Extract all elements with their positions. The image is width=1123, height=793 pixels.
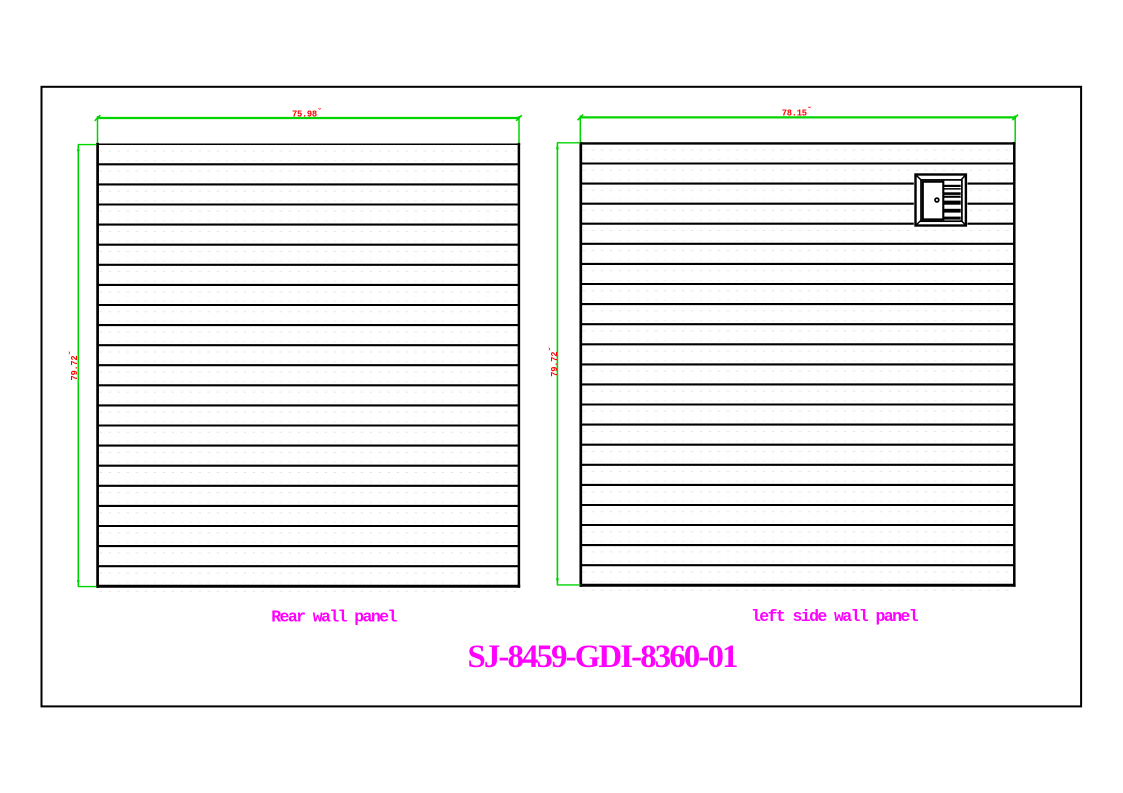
svg-text:79.72ˇ: 79.72ˇ (548, 347, 560, 377)
svg-text:79.72ˇ: 79.72ˇ (68, 350, 80, 380)
svg-text:SJ-8459-GDI-8360-01: SJ-8459-GDI-8360-01 (467, 639, 737, 675)
svg-text:Rear wall panel: Rear wall panel (271, 607, 397, 626)
svg-text:78.15ˇ: 78.15ˇ (782, 107, 812, 119)
svg-text:left side wall panel: left side wall panel (751, 607, 919, 626)
svg-text:75.98ˇ: 75.98ˇ (292, 108, 322, 120)
